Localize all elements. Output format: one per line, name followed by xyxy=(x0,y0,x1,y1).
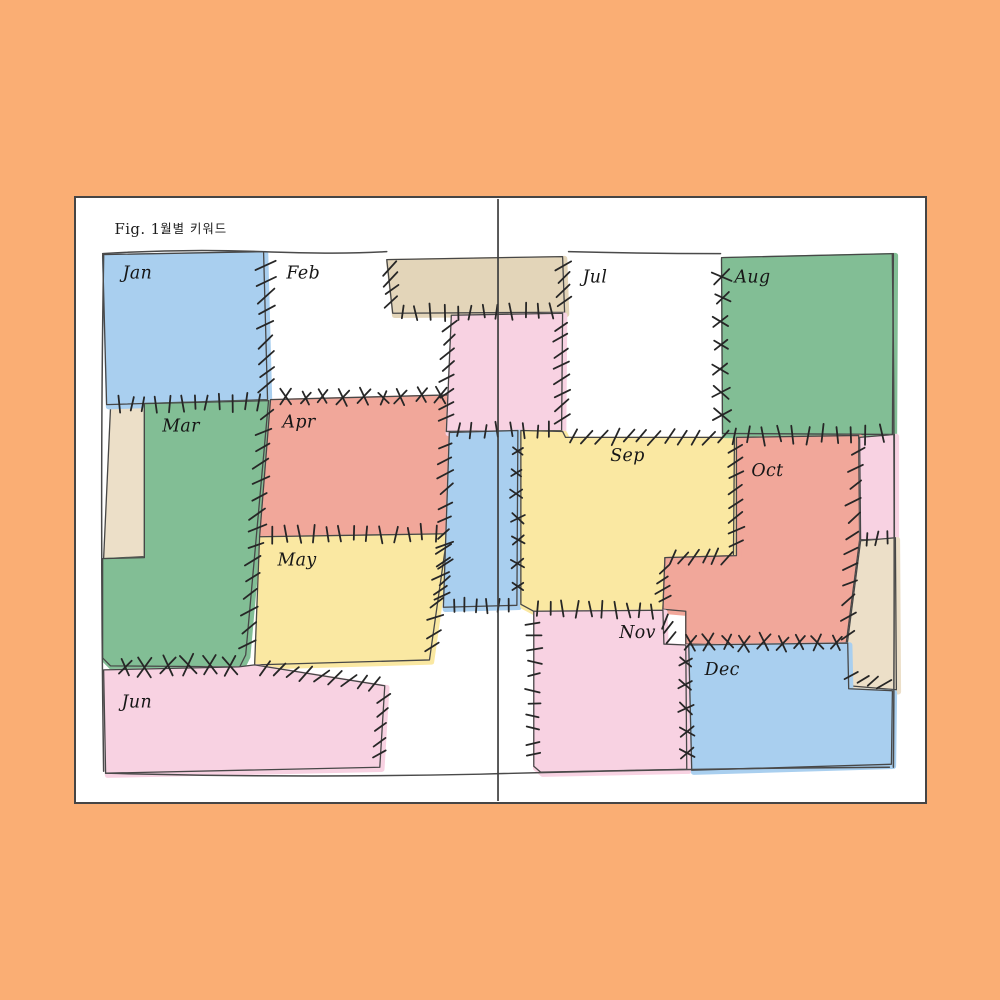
caption-figure-number: Fig. 1. xyxy=(115,220,166,238)
patchwork-figure: Fig. 1. 월별 키워드 Jan Feb Mar Apr May Jun J… xyxy=(76,198,925,802)
stitch-mark xyxy=(538,304,539,318)
stitch-mark xyxy=(429,304,430,320)
book-page: Fig. 1. 월별 키워드 Jan Feb Mar Apr May Jun J… xyxy=(74,196,927,804)
patch-top-pink xyxy=(446,313,564,433)
patch-layer xyxy=(103,252,899,776)
patch-jun xyxy=(104,665,387,775)
label-mar: Mar xyxy=(161,416,201,436)
label-feb: Feb xyxy=(285,263,320,283)
patch-right-pink xyxy=(860,434,897,541)
label-dec: Dec xyxy=(704,660,740,680)
caption-title: 월별 키워드 xyxy=(160,221,227,236)
patch-left-tan xyxy=(104,405,147,561)
stitch-mark xyxy=(537,425,538,437)
stitch-mark xyxy=(601,601,602,618)
border-top-right-line xyxy=(569,252,721,254)
patch-nov xyxy=(534,610,689,774)
label-jan: Jan xyxy=(120,263,153,283)
border-left-line xyxy=(102,256,104,772)
patch-center-blue xyxy=(443,430,519,609)
label-sep: Sep xyxy=(610,446,645,466)
label-jun: Jun xyxy=(119,693,153,713)
stitch-mark xyxy=(195,395,196,409)
label-nov: Nov xyxy=(618,623,656,643)
stitch-mark xyxy=(476,599,477,612)
label-oct: Oct xyxy=(751,461,783,481)
label-may: May xyxy=(276,551,316,571)
label-aug: Aug xyxy=(732,267,770,287)
stitch-mark xyxy=(436,526,437,542)
label-jul: Jul xyxy=(579,267,607,287)
background: Fig. 1. 월별 키워드 Jan Feb Mar Apr May Jun J… xyxy=(0,0,1000,1000)
stitch-mark xyxy=(219,394,220,409)
figure-caption: Fig. 1. 월별 키워드 xyxy=(115,220,228,238)
label-apr: Apr xyxy=(280,412,316,432)
stitch-mark xyxy=(867,533,868,546)
